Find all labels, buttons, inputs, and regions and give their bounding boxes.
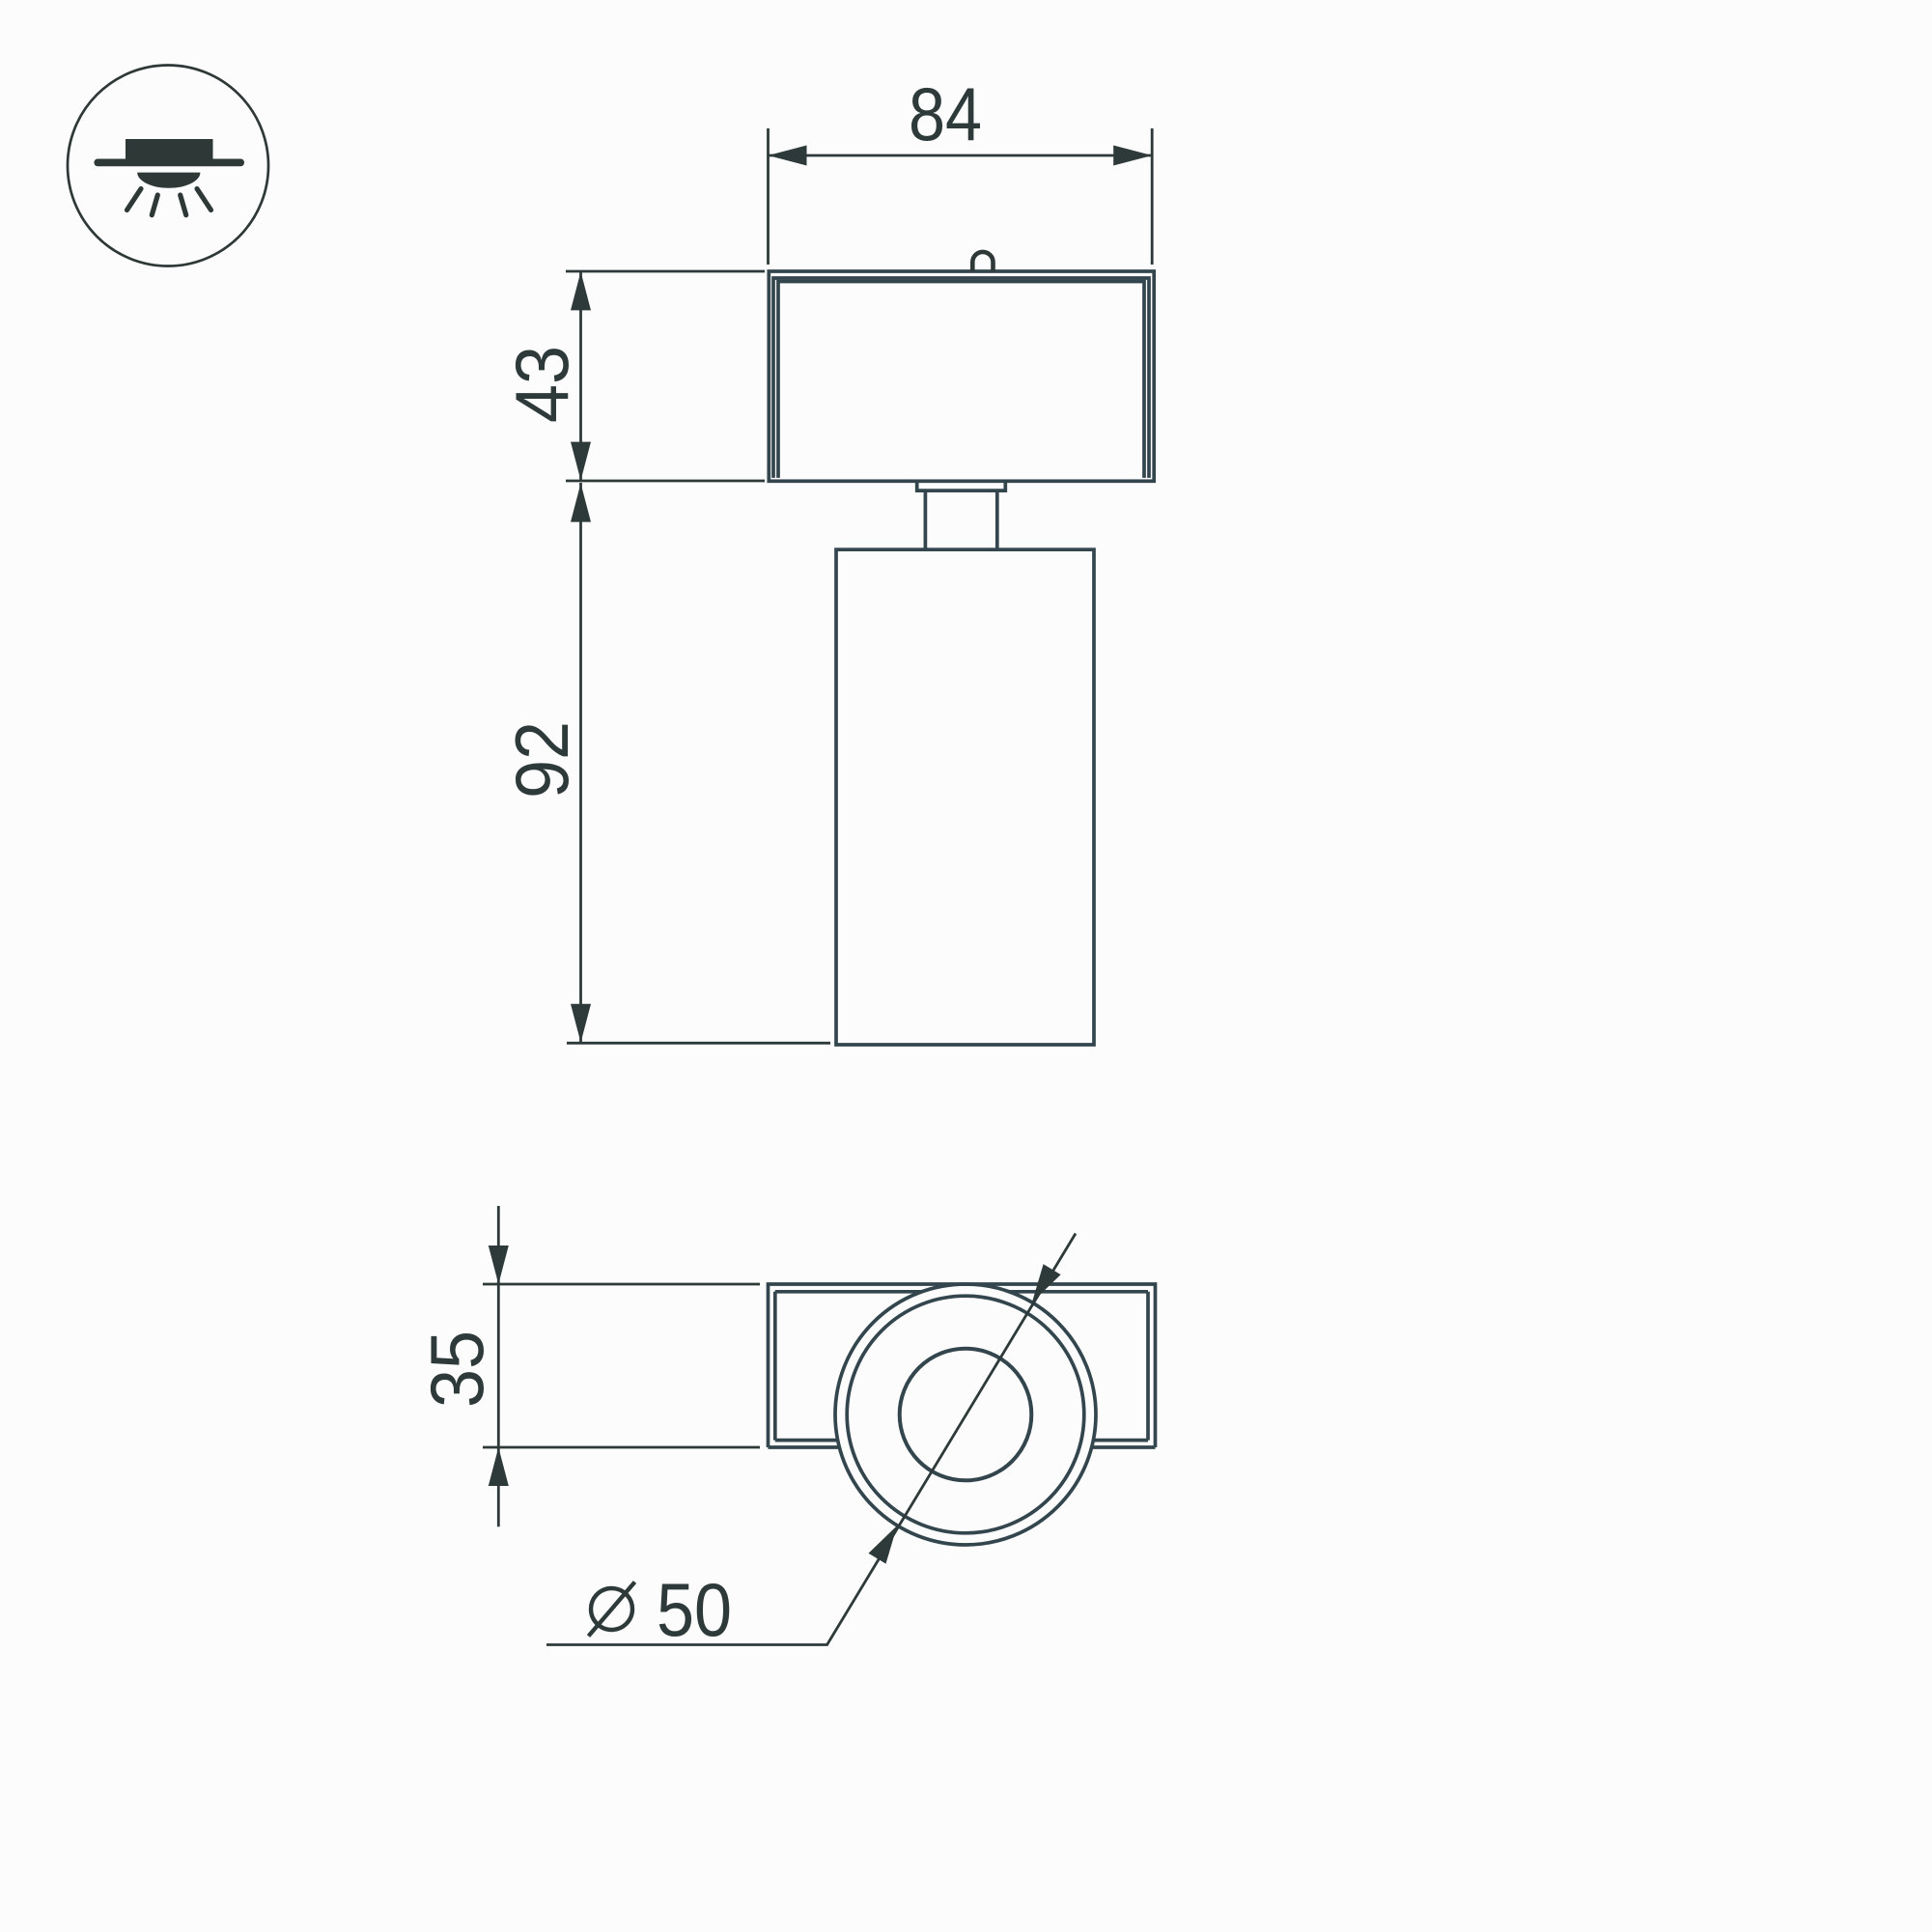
svg-text:35: 35	[414, 1330, 499, 1408]
svg-text:50: 50	[657, 1567, 732, 1652]
svg-text:43: 43	[499, 346, 584, 423]
svg-text:84: 84	[909, 71, 982, 156]
svg-text:92: 92	[499, 721, 584, 798]
